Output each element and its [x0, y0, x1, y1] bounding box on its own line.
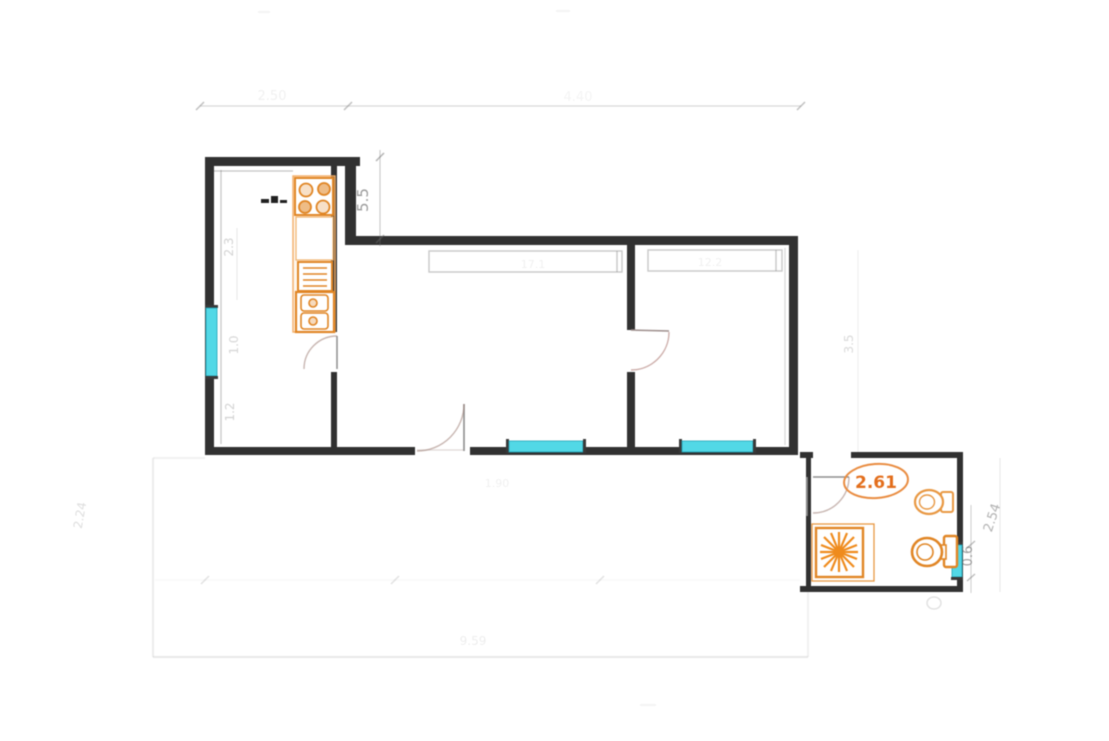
bathroom-width-label: 2.61 — [843, 462, 909, 500]
kitchen-unit — [261, 176, 335, 332]
bedroom-window — [679, 439, 756, 453]
bath-bottom-wall — [800, 586, 963, 592]
kitchen-counter — [296, 217, 333, 260]
living-window — [506, 439, 586, 453]
main-top-wall — [345, 236, 798, 245]
kitchen-sink — [296, 292, 334, 332]
entry-door — [417, 404, 464, 451]
toilet — [912, 536, 957, 567]
dim-bath-height: 2.54 — [981, 502, 1004, 534]
dim-right-side: 3.5 — [842, 334, 856, 353]
bottom-wall-left — [205, 447, 415, 455]
living-area-label: 17.1 — [521, 258, 546, 271]
dim-kitchen-upper: 2.3 — [222, 237, 236, 256]
wardrobe-strips — [429, 250, 782, 272]
bathroom-door — [807, 477, 849, 516]
floor-plan-canvas: 2.61 2.50 4.40 5.5 2.3 1.0 1.2 3.5 — [0, 0, 1109, 741]
room-partition-lower — [627, 372, 635, 447]
dim-terrace-left: 2.24 — [71, 501, 89, 530]
floor-plan-svg: 2.61 2.50 4.40 5.5 2.3 1.0 1.2 3.5 — [0, 0, 1109, 741]
dim-terrace-bottom: 9.59 — [460, 634, 487, 648]
drain-board — [298, 262, 332, 291]
dim-top-left: 2.50 — [258, 89, 287, 104]
terrace-outline — [153, 458, 808, 657]
dim-bath-window: 0.6 — [961, 546, 976, 567]
shower-cabin — [812, 524, 874, 581]
kitchen-partition-lower — [331, 372, 337, 447]
dim-kitchen-window: 1.0 — [227, 335, 241, 354]
main-right-wall — [789, 236, 798, 455]
dim-kitchen-height: 5.5 — [354, 188, 372, 212]
bidet — [915, 490, 953, 514]
dim-top-right: 4.40 — [564, 90, 593, 105]
kitchen-top-wall — [205, 157, 360, 166]
bath-left-wall — [806, 452, 811, 592]
stove — [295, 178, 333, 215]
bedroom-area-label: 12.2 — [698, 256, 723, 269]
kitchen-door — [304, 336, 337, 369]
room-partition-upper — [627, 245, 635, 330]
dim-entry-door: 1.90 — [485, 477, 510, 490]
shower-sunburst-icon — [820, 532, 858, 572]
dim-kitchen-lower: 1.2 — [223, 402, 237, 421]
doors — [304, 330, 849, 516]
scan-artifacts — [258, 11, 656, 705]
bath-top-wall-right — [851, 452, 963, 458]
bedroom-door — [631, 330, 669, 370]
bathroom-width-text: 2.61 — [855, 473, 897, 493]
stray-squiggle — [927, 597, 941, 609]
bathroom-fixtures: 2.61 — [812, 462, 957, 581]
faucet-icon — [261, 196, 287, 203]
kitchen-window — [205, 305, 218, 379]
